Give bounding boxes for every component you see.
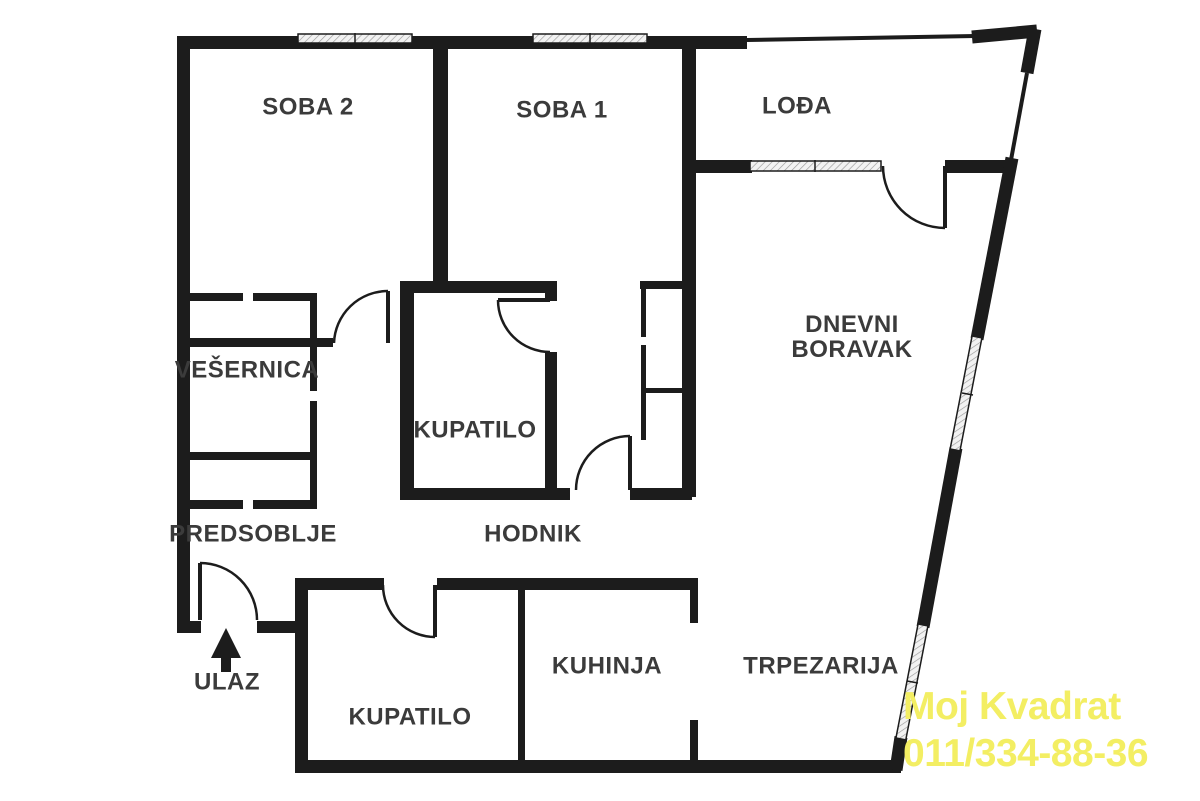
room-label-predsoblje: PREDSOBLJE — [169, 521, 337, 546]
watermark-phone: 011/334-88-36 — [903, 731, 1148, 778]
room-label-hodnik: HODNIK — [484, 521, 582, 546]
room-label-vesernica: VEŠERNICA — [175, 357, 320, 382]
room-label-trpezarija: TRPEZARIJA — [743, 653, 899, 678]
watermark-brand: Moj Kvadrat — [903, 684, 1148, 731]
entry-arrow-icon — [211, 628, 241, 672]
room-label-soba1: SOBA 1 — [516, 97, 607, 122]
floor-plan: SOBA 2 SOBA 1 LOĐA DNEVNI BORAVAK VEŠERN… — [0, 0, 1200, 801]
entrance-label-ulaz: ULAZ — [194, 669, 260, 694]
watermark: Moj Kvadrat 011/334-88-36 — [903, 684, 1148, 778]
room-label-kupatilo-upper: KUPATILO — [413, 417, 536, 442]
room-label-lodja: LOĐA — [762, 93, 832, 118]
room-label-dnevni-line2: BORAVAK — [791, 336, 912, 363]
room-label-dnevni-line1: DNEVNI — [805, 311, 899, 338]
room-label-dnevni-boravak: DNEVNI BORAVAK — [782, 312, 922, 362]
room-label-kuhinja: KUHINJA — [552, 653, 662, 678]
room-label-kupatilo-lower: KUPATILO — [348, 704, 471, 729]
room-label-soba2: SOBA 2 — [262, 94, 353, 119]
